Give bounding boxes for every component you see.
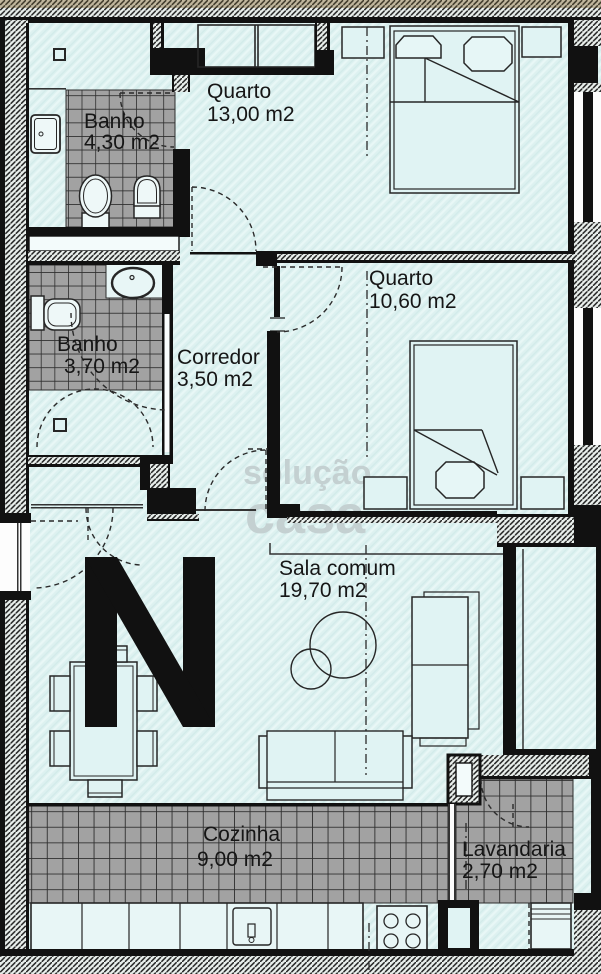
svg-text:Cozinha: Cozinha (203, 823, 280, 846)
svg-text:10,60 m2: 10,60 m2 (369, 290, 457, 313)
svg-text:Banho: Banho (84, 110, 145, 133)
svg-text:4,30 m2: 4,30 m2 (84, 131, 160, 154)
svg-text:3,70 m2: 3,70 m2 (64, 355, 140, 378)
svg-text:19,70 m2: 19,70 m2 (279, 579, 367, 602)
svg-text:9,00 m2: 9,00 m2 (197, 848, 273, 871)
svg-text:3,50 m2: 3,50 m2 (177, 368, 253, 391)
svg-text:Sala comum: Sala comum (279, 557, 396, 580)
svg-text:2,70 m2: 2,70 m2 (462, 860, 538, 883)
svg-text:Corredor: Corredor (177, 346, 260, 369)
svg-text:Quarto: Quarto (207, 80, 271, 103)
svg-text:Lavandaria: Lavandaria (462, 838, 566, 861)
svg-text:Quarto: Quarto (369, 267, 433, 290)
svg-text:13,00 m2: 13,00 m2 (207, 103, 295, 126)
svg-text:Banho: Banho (57, 333, 118, 356)
